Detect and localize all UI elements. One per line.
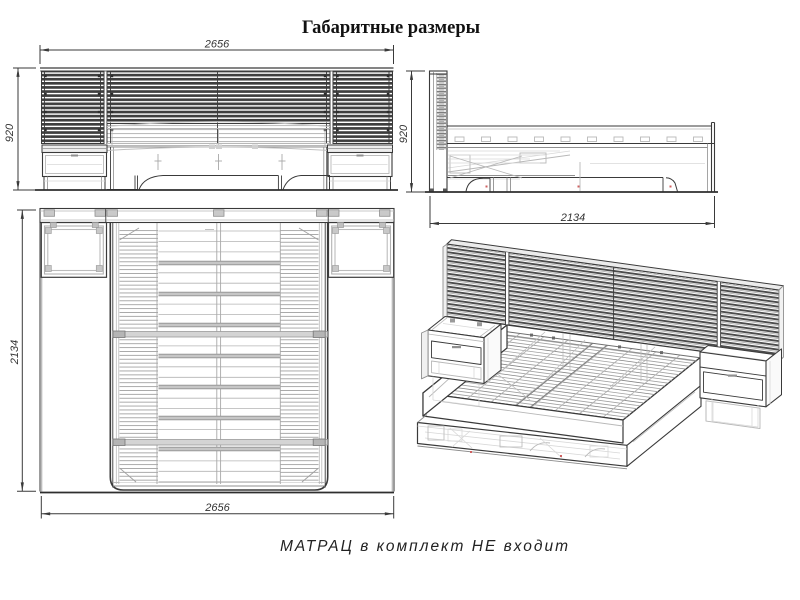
svg-text:2656: 2656: [204, 502, 230, 514]
svg-text:Габаритные размеры: Габаритные размеры: [302, 18, 480, 38]
svg-text:920: 920: [398, 124, 410, 143]
svg-text:2134: 2134: [560, 212, 585, 224]
svg-text:920: 920: [4, 123, 16, 142]
svg-text:МАТРАЦ в комплект НЕ входи: МАТРАЦ в комплект НЕ входит: [280, 538, 570, 555]
svg-text:2134: 2134: [9, 340, 21, 365]
svg-text:2656: 2656: [204, 39, 230, 51]
